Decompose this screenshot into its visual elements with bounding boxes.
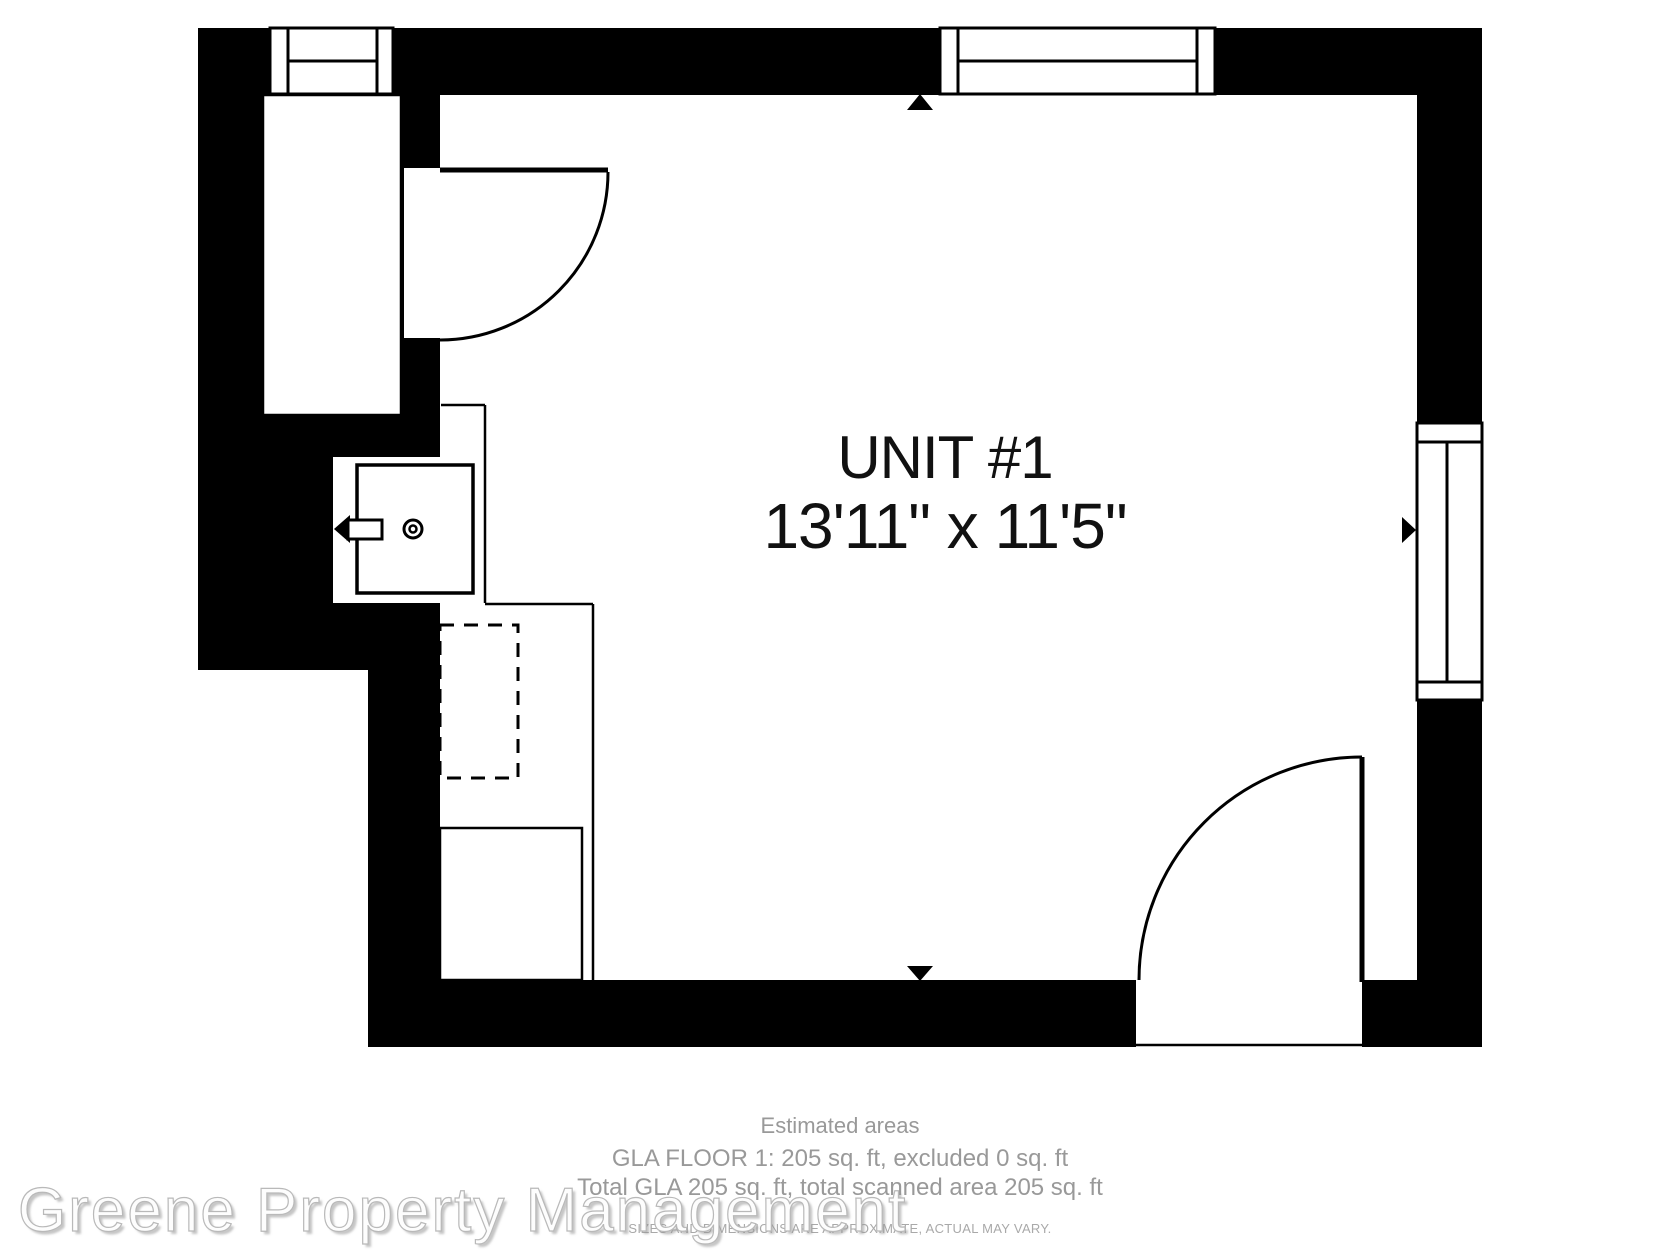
door-bottom-right [1136,757,1362,1047]
door-opening [1136,980,1362,1047]
dishwasher-dashed-outline [440,625,518,778]
door-swing-arc [440,172,608,340]
unit-dimensions-label: 13'11" x 11'5" [440,491,1450,563]
faucet-inner-icon [410,526,417,533]
kitchen-nook-side-wall [263,457,333,603]
door-swing-arc [1139,757,1362,980]
door-top-left [404,168,608,340]
watermark: Greene Property Management [18,1175,907,1246]
kitchen-wall-jog [198,603,440,670]
closet-bottom-wall [263,415,440,457]
left-wall-upper [198,95,263,670]
window-top-right [940,28,1215,94]
floor-plan-drawing [0,0,1680,1260]
estimated-areas-title: Estimated areas [0,1113,1680,1139]
door-opening [404,168,440,338]
window-top-left [270,28,393,94]
dimension-arrow-down-icon [907,966,933,981]
room-label: UNIT #1 13'11" x 11'5" [440,424,1450,563]
left-wall-lower [368,670,440,980]
unit-label: UNIT #1 [440,424,1450,491]
dimension-arrow-up-icon [907,94,933,110]
cabinet [440,828,582,980]
gla-floor-line: GLA FLOOR 1: 205 sq. ft, excluded 0 sq. … [0,1145,1680,1173]
closet-alcove [263,95,401,415]
floorplan-page: UNIT #1 13'11" x 11'5" Estimated areas G… [0,0,1680,1260]
